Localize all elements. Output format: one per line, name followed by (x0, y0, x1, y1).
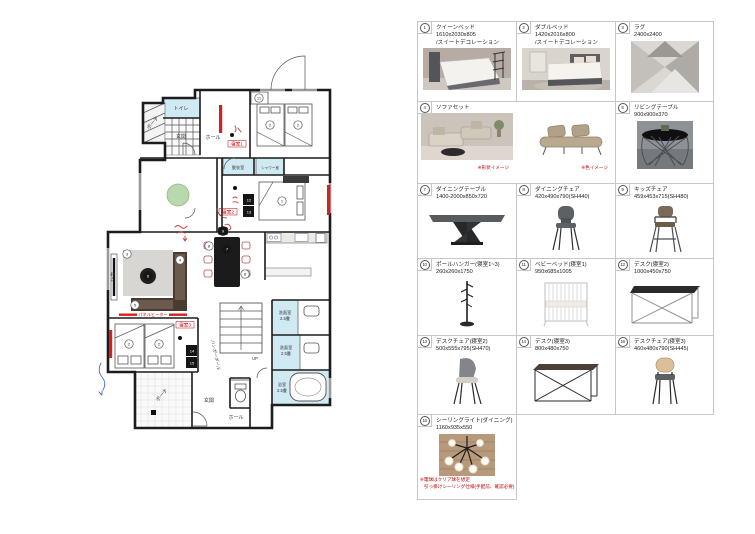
item-dims: 2400x2400 (634, 32, 711, 39)
item-number: 8 (517, 184, 531, 196)
catalog-item-desk-chair-bedroom3: 15 デスクチェア(寝室3)460x480x790(SH445) (615, 335, 714, 415)
desk-bedroom2-image (624, 278, 706, 326)
catalog-item-rug: 3 ラグ2400x2400 (615, 21, 714, 102)
label-toilet: トイレ (173, 106, 188, 112)
catalog-row-4: 10 ポールハンガー(寝室1~3)260x260x1750 11 ベビーベッド(… (418, 259, 716, 336)
item-name: デスクチェア(寝室3) (634, 339, 711, 346)
desk-bedroom3-image (527, 355, 605, 405)
item-number: 14 (517, 336, 531, 348)
item-name: クイーンベッド (436, 25, 514, 32)
label-washroom-b: 洗面室 (280, 344, 293, 351)
washbasin-b (304, 343, 319, 353)
item-dims: 1400-2000x850x720 (436, 194, 514, 201)
item-number-text: 3 (618, 23, 628, 33)
label-dressing: 脱衣室 (232, 164, 245, 171)
item-number: 7 (418, 184, 432, 196)
label-panel-heater: パネルヒーター (138, 311, 167, 318)
plan-marker-number: 12 (247, 198, 252, 203)
catalog-row-3: 7 ダイニングテーブル1400-2000x850x720 8 ダイニングチェア4… (418, 184, 716, 259)
sofa-shape-image (421, 113, 513, 160)
item-number: 13 (418, 336, 432, 348)
item-number: 10 (418, 259, 432, 271)
item-dims: 1610x2030x805 (436, 32, 514, 39)
item-name: ソファセット (436, 105, 613, 112)
double-bed-image (522, 48, 610, 90)
item-number: 9 (616, 184, 630, 196)
catalog-item-dining-chair: 8 ダイニングチェア420x490x790(SH440) (516, 183, 616, 259)
ceiling-light-note-2: 引っ掛けシーリング仕様(手配前、確認必要) (424, 484, 514, 490)
item-dims: 1420x2016x800 (535, 32, 613, 39)
item-dims: 800x480x750 (535, 346, 613, 353)
catalog-item-desk-bedroom3: 14 デスク(寝室3)800x480x750 (516, 335, 616, 415)
label-entrance-bottom: 玄関 (204, 397, 214, 404)
item-name: ポールハンガー(寝室1~3) (436, 262, 514, 269)
toilet-bottom (230, 380, 250, 408)
beds-bedroom1 (257, 104, 312, 146)
furniture-plan-page: トイレ ポーチ 玄関 ホール 脱衣室 シャワー室 TV台 洗面室 2.5畳 洗面… (0, 0, 755, 534)
item-name: デスクチェア(寝室2) (436, 339, 514, 346)
item-dims: 1000x450x750 (634, 269, 711, 276)
item-name: リビングテーブル (634, 105, 711, 112)
item-name: デスク(寝室3) (535, 339, 613, 346)
item-name: ダイニングテーブル (436, 187, 514, 194)
item-dims: 420x490x790(SH440) (535, 194, 613, 201)
porch-bottom (135, 372, 192, 428)
dining-chair-image (544, 203, 588, 253)
pole-hanger-bedroom2 (233, 186, 237, 190)
item-number-text: 10 (420, 260, 430, 270)
label-shower: シャワー室 (261, 165, 279, 170)
label-bath-size: 2.5畳 (277, 388, 287, 393)
bathtub (290, 373, 326, 401)
label-hall-top: ホール (205, 135, 220, 141)
catalog-item-baby-bed: 11 ベビーベッド(寝室1)950x685x1005 (516, 258, 616, 336)
item-dims: 950x685x1005 (535, 269, 613, 276)
item-name: キッズチェア (634, 187, 711, 194)
catalog-item-desk-chair-bedroom2: 13 デスクチェア(寝室2)500x555x795(SH470) (417, 335, 517, 415)
ceiling-light-note-1: ※電球はクリア球を想定 (420, 477, 514, 483)
item-number: 2 (517, 22, 531, 34)
label-bedroom3: 寝室3 (179, 322, 191, 328)
label-bedroom2: 寝室2 (222, 209, 234, 215)
closet-bedroom2 (283, 176, 309, 183)
desk-chair-bedroom2-image (444, 355, 490, 407)
item-name: ダイニングチェア (535, 187, 613, 194)
catalog-item-dining-table: 7 ダイニングテーブル1400-2000x850x720 (417, 183, 517, 259)
label-washroom-a-size: 2.5畳 (280, 316, 290, 321)
queen-bed-image (423, 48, 511, 90)
furniture-catalog: 1 クイーンベッド1610x2030x805/スイートデコレーション 2 ダブル… (418, 22, 716, 500)
item-number-text: 15 (618, 337, 628, 347)
label-bath: 浴室 (278, 381, 286, 388)
catalog-item-sofa-set: 4 ソファセット ※形状イメージ (417, 101, 616, 184)
catalog-item-kids-chair: 9 キッズチェア459x453x715(SH480) (615, 183, 714, 259)
item-name: シーリングライト(ダイニング) (436, 418, 514, 425)
desk-chair-bedroom3-image (643, 355, 687, 407)
floor-plan: トイレ ポーチ 玄関 ホール 脱衣室 シャワー室 TV台 洗面室 2.5畳 洗面… (35, 48, 335, 438)
item-name: ラグ (634, 25, 711, 32)
item-number: 3 (616, 22, 630, 34)
tatami-table (167, 184, 189, 206)
beds-bedroom3 (115, 324, 174, 368)
sofa-color-image (534, 118, 612, 160)
item-number: 12 (616, 259, 630, 271)
stairs (220, 303, 262, 353)
catalog-row-5: 13 デスクチェア(寝室2)500x555x795(SH470) 14 デスク(… (418, 336, 716, 415)
item-number-text: 13 (420, 337, 430, 347)
washbasin-a (304, 306, 319, 316)
item-dims: 900x900x370 (634, 112, 711, 119)
pole-hanger-bedroom1 (230, 133, 234, 137)
item-number-text: 12 (618, 260, 628, 270)
catalog-item-living-table: 6 リビングテーブル900x900x370 (615, 101, 714, 184)
label-washroom-a: 洗面室 (279, 309, 292, 316)
label-hall-bottom: ホール (228, 415, 243, 421)
pole-hanger-image (455, 278, 479, 328)
catalog-item-ceiling-light: 16 シーリングライト(ダイニング)1160x935x550 ※電球はクリア球を… (417, 414, 517, 500)
ceiling-light-image (439, 434, 495, 476)
catalog-item-queen-bed: 1 クイーンベッド1610x2030x805/スイートデコレーション (417, 21, 517, 102)
catalog-row-6: 16 シーリングライト(ダイニング)1160x935x550 ※電球はクリア球を… (418, 415, 716, 500)
kitchen (265, 232, 327, 276)
catalog-row-2: 4 ソファセット ※形状イメージ (418, 102, 716, 184)
dining-table-image (423, 203, 511, 247)
floor-plan-drawing: トイレ ポーチ 玄関 ホール 脱衣室 シャワー室 TV台 洗面室 2.5畳 洗面… (35, 48, 335, 438)
catalog-row-1: 1 クイーンベッド1610x2030x805/スイートデコレーション 2 ダブル… (418, 22, 716, 102)
plan-marker-number: 15 (190, 361, 195, 366)
item-dims: 1160x935x550 (436, 425, 514, 432)
item-number-text: 9 (618, 185, 628, 195)
item-name: デスク(寝室2) (634, 262, 711, 269)
item-dims: 500x555x795(SH470) (436, 346, 514, 353)
item-number: 6 (616, 102, 630, 114)
item-number-text: 16 (420, 416, 430, 426)
label-washroom-b-size: 2.5畳 (281, 351, 291, 356)
catalog-item-pole-hanger: 10 ポールハンガー(寝室1~3)260x260x1750 (417, 258, 517, 336)
pole-hanger-bedroom3 (178, 336, 182, 340)
item-number-text: 7 (420, 185, 430, 195)
living-table-image (637, 121, 693, 169)
item-note: /スイートデコレーション (436, 40, 514, 47)
item-number-text: 14 (519, 337, 529, 347)
item-dims: 460x480x790(SH445) (634, 346, 711, 353)
item-number: 16 (418, 415, 432, 427)
baby-bed-image (538, 278, 594, 328)
label-entrance-top: 玄関 (176, 133, 186, 140)
catalog-item-double-bed: 2 ダブルベッド1420x2016x800/スイートデコレーション (516, 21, 616, 102)
sofa-shape-caption: ※形状イメージ (425, 165, 509, 171)
catalog-item-desk-bedroom2: 12 デスク(寝室2)1000x450x750 (615, 258, 714, 336)
label-bedroom1: 寝室1 (231, 141, 243, 147)
kids-chair-image (642, 203, 688, 255)
item-number: 4 (418, 102, 432, 114)
item-number-text: 4 (420, 103, 430, 113)
sofa-color-caption: ※色イメージ (538, 165, 608, 171)
plan-marker-number: 14 (190, 349, 195, 354)
item-note: /スイートデコレーション (535, 40, 613, 47)
item-number: 15 (616, 336, 630, 348)
item-number: 1 (418, 22, 432, 34)
rug-image (631, 41, 699, 93)
plan-marker-number: 13 (247, 210, 252, 215)
item-dims: 459x453x715(SH480) (634, 194, 711, 201)
item-dims: 260x260x1750 (436, 269, 514, 276)
item-number-text: 8 (519, 185, 529, 195)
item-number-text: 1 (420, 23, 430, 33)
item-number-text: 2 (519, 23, 529, 33)
item-number: 11 (517, 259, 531, 271)
item-number-text: 6 (618, 103, 628, 113)
item-name: ダブルベッド (535, 25, 613, 32)
label-up: UP (252, 356, 258, 361)
item-number-text: 11 (519, 260, 529, 270)
item-name: ベビーベッド(寝室1) (535, 262, 613, 269)
label-tv: TV台 (109, 271, 116, 282)
